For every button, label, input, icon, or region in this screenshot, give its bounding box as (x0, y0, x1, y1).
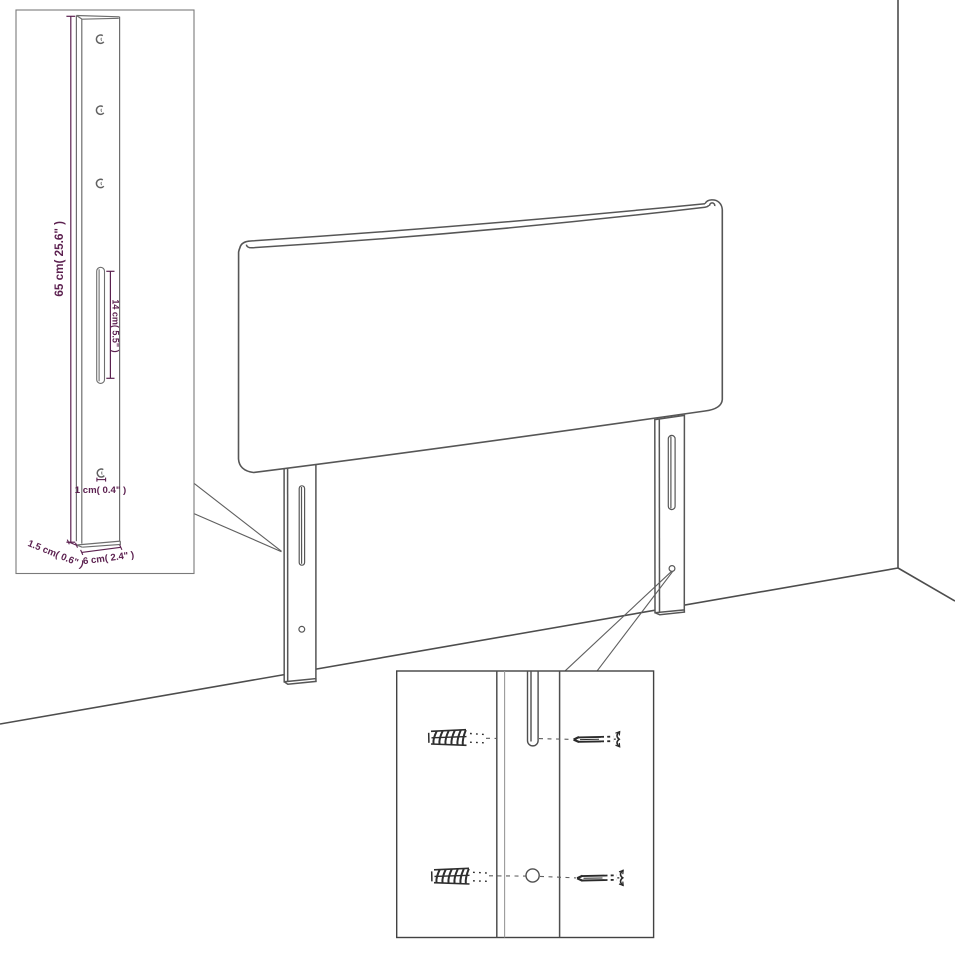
svg-text:65 cm( 25.6" ): 65 cm( 25.6" ) (53, 221, 66, 297)
svg-text:14 cm( 5.5" ): 14 cm( 5.5" ) (110, 299, 120, 352)
svg-text:1 cm( 0.4" ): 1 cm( 0.4" ) (75, 485, 126, 496)
